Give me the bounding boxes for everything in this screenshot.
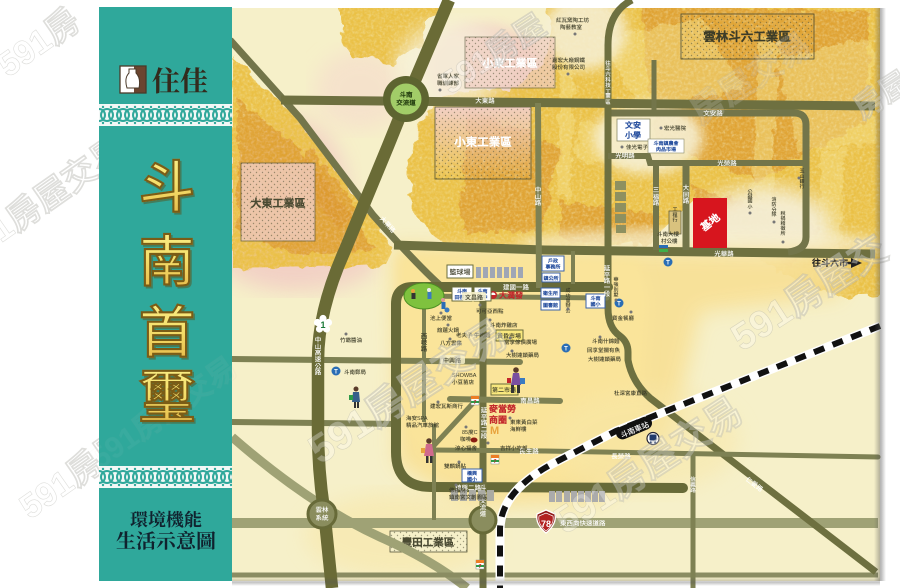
svg-text:中山路: 中山路 xyxy=(533,186,543,206)
svg-text:鎮公所: 鎮公所 xyxy=(542,275,558,282)
svg-text:延平路二段: 延平路二段 xyxy=(479,406,489,439)
svg-text:往斗六科技工業區: 往斗六科技工業區 xyxy=(604,60,612,105)
svg-text:吉祥小吃部: 吉祥小吃部 xyxy=(500,444,528,452)
svg-text:建國一路: 建國一路 xyxy=(503,282,530,292)
svg-text:宏光醫院: 宏光醫院 xyxy=(664,124,687,132)
svg-text:78: 78 xyxy=(541,517,551,530)
svg-text:大樹連鎖藥局: 大樹連鎖藥局 xyxy=(588,355,622,363)
svg-text:住佳: 住佳 xyxy=(152,60,208,100)
svg-text:交流道: 交流道 xyxy=(396,97,416,107)
svg-text:中山高速公路: 中山高速公路 xyxy=(313,336,323,376)
svg-text:大東工業區: 大東工業區 xyxy=(250,195,306,211)
svg-text:7: 7 xyxy=(474,399,477,406)
svg-text:工程行: 工程行 xyxy=(672,207,679,223)
svg-text:7: 7 xyxy=(479,563,482,570)
svg-text:衛生所: 衛生所 xyxy=(542,290,558,297)
svg-text:咖啡: 咖啡 xyxy=(460,435,472,443)
svg-text:斗南郵局: 斗南郵局 xyxy=(344,368,367,376)
svg-text:國小: 國小 xyxy=(590,301,601,308)
svg-text:肉品市場: 肉品市場 xyxy=(656,146,676,153)
svg-text:T: T xyxy=(666,258,670,267)
svg-text:海鮮樓: 海鮮樓 xyxy=(510,425,527,433)
svg-text:光華路: 光華路 xyxy=(714,248,734,258)
svg-text:竹霸醬油: 竹霸醬油 xyxy=(340,336,363,344)
svg-text:1: 1 xyxy=(320,318,325,331)
svg-text:斗南什錦麵: 斗南什錦麵 xyxy=(592,337,620,345)
svg-text:大潤發: 大潤發 xyxy=(498,290,524,301)
svg-text:涼心福舍: 涼心福舍 xyxy=(455,444,478,452)
svg-text:7: 7 xyxy=(494,458,497,465)
svg-text:陶藝教室: 陶藝教室 xyxy=(560,23,583,31)
svg-text:杜深宮康直路: 杜深宮康直路 xyxy=(614,389,648,397)
svg-text:池上便當: 池上便當 xyxy=(430,314,453,322)
svg-text:寶金餐廳: 寶金餐廳 xyxy=(612,314,635,322)
svg-text:系統: 系統 xyxy=(316,512,330,522)
svg-text:圖書館: 圖書館 xyxy=(543,302,558,309)
svg-text:籃球場: 籃球場 xyxy=(450,268,471,278)
svg-text:大東路: 大東路 xyxy=(475,95,495,105)
svg-text:T: T xyxy=(564,344,568,353)
svg-text:光明路: 光明路 xyxy=(615,150,635,160)
svg-text:稅捐稽徵所: 稅捐稽徵所 xyxy=(780,210,787,236)
svg-text:股份有限公司: 股份有限公司 xyxy=(552,63,585,71)
svg-text:生活示意圖: 生活示意圖 xyxy=(116,525,216,554)
svg-text:公誠國小: 公誠國小 xyxy=(747,188,754,209)
svg-text:事務所: 事務所 xyxy=(545,264,560,271)
svg-text:南: 南 xyxy=(139,217,195,298)
svg-text:精品汽車旅館: 精品汽車旅館 xyxy=(406,421,440,429)
svg-text:大同路: 大同路 xyxy=(681,184,691,204)
svg-text:信義路: 信義路 xyxy=(689,476,697,493)
svg-text:光榮路: 光榮路 xyxy=(717,158,737,168)
svg-text:M: M xyxy=(490,422,499,438)
svg-text:村公樓: 村公樓 xyxy=(661,237,678,245)
svg-text:璽: 璽 xyxy=(139,352,196,434)
svg-text:延平路一段: 延平路一段 xyxy=(602,264,612,297)
svg-text:華強別墅: 華強別墅 xyxy=(613,276,620,297)
svg-text:雙麟鍋貼: 雙麟鍋貼 xyxy=(444,462,467,470)
svg-text:南昌路: 南昌路 xyxy=(520,395,540,405)
svg-text:三福路: 三福路 xyxy=(651,186,661,206)
svg-text:T: T xyxy=(617,299,621,308)
svg-text:小東工業區: 小東工業區 xyxy=(453,134,512,150)
svg-text:消防分隊: 消防分隊 xyxy=(771,196,778,217)
svg-text:鎮南宮文創園區: 鎮南宮文創園區 xyxy=(449,493,488,501)
svg-text:文昌路: 文昌路 xyxy=(465,293,483,302)
svg-text:回享堂擱有魚: 回享堂擱有魚 xyxy=(587,346,621,354)
svg-text:小學: 小學 xyxy=(624,130,641,141)
svg-text:玉山銀行: 玉山銀行 xyxy=(799,168,806,189)
svg-text:T: T xyxy=(334,367,338,376)
svg-text:斗: 斗 xyxy=(139,143,195,224)
